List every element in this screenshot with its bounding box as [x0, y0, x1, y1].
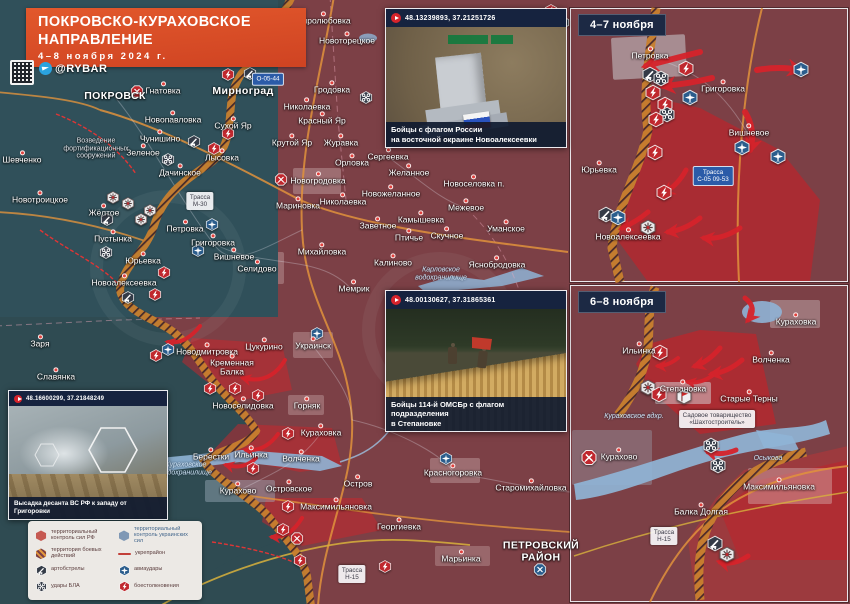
- smoke: [19, 426, 109, 481]
- zone-rf-legend-icon: [35, 530, 47, 541]
- legend-item: укрепрайон: [118, 547, 195, 561]
- legend-item: авиаудары: [118, 563, 195, 577]
- artillery-legend-icon: [35, 565, 47, 576]
- soldier-figure: [477, 351, 488, 369]
- osd-badge: [448, 35, 488, 44]
- geo-coordinates: 48.00130627, 37.31865361: [405, 297, 495, 304]
- legend-label: территория боевых действий: [51, 548, 112, 560]
- map-canvas: ПОКРОВСКГнатовкаМирноградНовопавловкаСух…: [0, 0, 850, 604]
- geo-coordinates: 48.16600299, 37.21848249: [26, 396, 104, 402]
- camera-icon: [391, 13, 401, 23]
- legend-label: боестолкновения: [134, 584, 179, 590]
- photo-caption: Бойцы 114-й ОМСБр с флагом подразделения…: [386, 397, 566, 431]
- road-label: ТрассаН-15: [338, 565, 365, 583]
- telegram-icon: [39, 62, 52, 75]
- legend-item: территориальный контроль украинских сил: [118, 527, 195, 545]
- zone-battle-legend-icon: [35, 548, 47, 559]
- legend-label: укрепрайон: [135, 551, 165, 557]
- photo-header: 48.00130627, 37.31865361: [386, 291, 566, 309]
- road-label: ТрассаС-05 09-53: [693, 166, 734, 186]
- unit-flag: [472, 337, 492, 350]
- road-label: ТрассаН-15: [650, 527, 677, 545]
- photo-header: 48.16600299, 37.21848249: [9, 391, 167, 406]
- inset2-title: 6–8 ноября: [578, 291, 666, 313]
- photo-image: Бойцы с флагом России на восточной окраи…: [386, 27, 566, 147]
- legend-label: удары БЛА: [51, 584, 80, 590]
- photo-image: Высадка десанта ВС РФ к западу от Григор…: [9, 406, 167, 519]
- legend-item: территориальный контроль сил РФ: [35, 527, 112, 545]
- legend-item: боестолкновения: [118, 580, 195, 594]
- photo-image: Бойцы 114-й ОМСБр с флагом подразделения…: [386, 309, 566, 431]
- legend-item: удары БЛА: [35, 580, 112, 594]
- photo-inset-novoalekseevka: 48.13239893, 37.21251726 Бойцы с флагом …: [385, 8, 567, 148]
- legend-item: территория боевых действий: [35, 547, 112, 561]
- title-banner: ПОКРОВСКО-КУРАХОВСКОЕ НАПРАВЛЕНИЕ 4–8 но…: [26, 8, 306, 67]
- camera-icon: [391, 295, 401, 305]
- clash-legend-icon: [118, 581, 130, 592]
- photo-header: 48.13239893, 37.21251726: [386, 9, 566, 27]
- channel-handle[interactable]: @RYBAR: [55, 63, 107, 75]
- inset1-title: 4–7 ноября: [578, 14, 666, 36]
- road-label: Садовое товарищество«Шахтостроитель»: [679, 410, 755, 428]
- legend-panel: территориальный контроль сил РФтерритори…: [28, 521, 202, 600]
- photo-inset-stepanovka: 48.00130627, 37.31865361 Бойцы 114-й ОМС…: [385, 290, 567, 432]
- legend-label: артобстрелы: [51, 567, 85, 573]
- photo-inset-grigorovka: 48.16600299, 37.21848249 Высадка десанта…: [8, 390, 168, 520]
- legend-item: артобстрелы: [35, 563, 112, 577]
- uav-legend-icon: [35, 581, 47, 592]
- photo-caption: Высадка десанта ВС РФ к западу от Григор…: [9, 497, 167, 519]
- geo-coordinates: 48.13239893, 37.21251726: [405, 15, 495, 22]
- branding-block: @RYBAR: [10, 60, 107, 85]
- osd-badge: [491, 35, 513, 44]
- soldier-figure: [448, 347, 457, 364]
- legend-label: территориальный контроль сил РФ: [51, 530, 112, 542]
- qr-code: [10, 60, 34, 85]
- map-title-line2: НАПРАВЛЕНИЕ: [38, 31, 296, 49]
- photo-caption: Бойцы с флагом России на восточной окраи…: [386, 122, 566, 147]
- fortline-legend-icon: [118, 553, 131, 556]
- legend-label: территориальный контроль украинских сил: [134, 527, 195, 545]
- map-title-line1: ПОКРОВСКО-КУРАХОВСКОЕ: [38, 13, 296, 31]
- zone-ua-legend-icon: [118, 530, 130, 541]
- legend-label: авиаудары: [134, 567, 162, 573]
- airstrike-legend-icon: [118, 565, 130, 576]
- road-label: О-05-44: [252, 73, 284, 86]
- road-label: ТрассаМ-30: [186, 192, 213, 210]
- camera-icon: [14, 395, 22, 403]
